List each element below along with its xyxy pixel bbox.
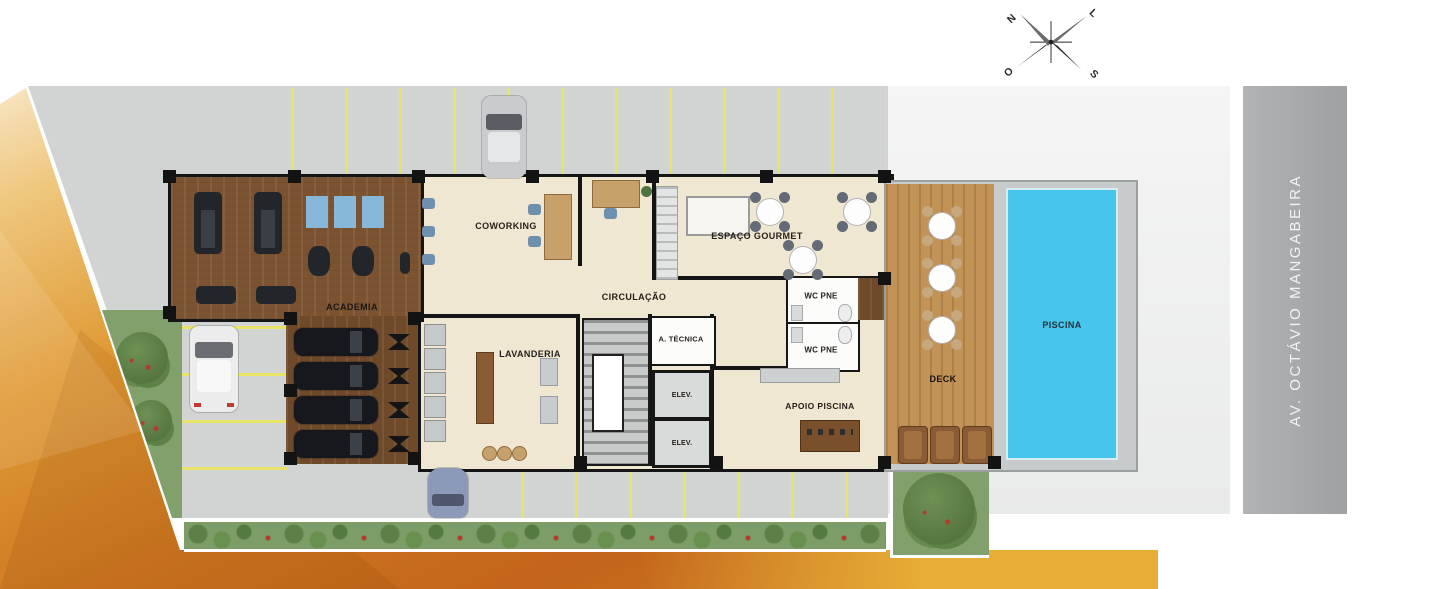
wc-fixture: [838, 326, 852, 344]
floor-plan-canvas: AV. OCTÁVIO MANGABEIRA ELEV.: [0, 0, 1442, 589]
weight-bench: [256, 286, 296, 304]
compass-south: S: [1087, 68, 1100, 81]
hedge-strip: [184, 519, 886, 552]
tree: [903, 473, 975, 545]
column: [412, 170, 425, 183]
compass-east: L: [1087, 7, 1100, 20]
wall: [418, 314, 578, 318]
car-roof: [197, 360, 231, 392]
office-chair: [422, 198, 435, 209]
column: [526, 170, 539, 183]
column: [760, 170, 773, 183]
elevator-2: ELEV.: [652, 418, 712, 468]
apoio-sideboard: [800, 420, 860, 452]
compass-rose: N L O S: [995, 4, 1107, 84]
washer: [424, 324, 446, 346]
laundry-cart: [540, 358, 558, 386]
label-piscina: PISCINA: [1042, 320, 1081, 330]
office-chair: [422, 226, 435, 237]
exercise-bike: [352, 246, 374, 276]
elevator-label: ELEV.: [672, 440, 693, 447]
stairs: [582, 318, 650, 466]
parked-car-black: [294, 430, 378, 458]
compass-west: O: [1003, 66, 1017, 80]
gourmet-round-table: [748, 190, 792, 234]
car-windshield: [432, 494, 464, 506]
treadmill-belt: [261, 210, 275, 248]
parked-car-black: [294, 328, 378, 356]
deck-round-table: [920, 204, 964, 248]
wc-fixture: [838, 304, 852, 322]
tree: [116, 332, 168, 384]
elevator-1: ELEV.: [652, 370, 712, 420]
washer: [424, 420, 446, 442]
car-windshield: [350, 399, 362, 421]
parking-lines-top: [240, 88, 886, 178]
parked-car-silver: [482, 96, 526, 178]
laundry-shelf: [476, 352, 494, 424]
label-apoio-piscina: APOIO PISCINA: [785, 401, 854, 411]
gourmet-counter: [656, 186, 678, 280]
treadmill: [194, 192, 222, 254]
treadmill-belt: [201, 210, 215, 248]
column: [710, 456, 723, 469]
room-wc-pne-1: [786, 276, 860, 326]
apoio-counter: [760, 368, 840, 383]
car-roof: [488, 132, 520, 162]
garden-square: [890, 466, 989, 558]
wc-fixture: [791, 327, 803, 343]
exercise-bike: [308, 246, 330, 276]
column: [878, 456, 891, 469]
label-area-tecnica: A. TÉCNICA: [659, 335, 704, 344]
column: [408, 452, 421, 465]
street-name: AV. OCTÁVIO MANGABEIRA: [1287, 174, 1304, 427]
coworking-desk: [544, 194, 572, 260]
gourmet-round-table: [835, 190, 879, 234]
plant: [641, 186, 652, 197]
wall: [578, 174, 582, 266]
column: [408, 312, 421, 325]
label-wc-pne-1: WC PNE: [804, 292, 837, 301]
column: [163, 170, 176, 183]
car-windshield: [350, 433, 362, 455]
parked-car-blue: [428, 468, 468, 518]
bottles: [807, 429, 853, 435]
car-taillight: [194, 403, 201, 407]
office-chair: [528, 204, 541, 215]
laundry-basket: [512, 446, 527, 461]
parked-car-black: [294, 362, 378, 390]
exercise-mat: [362, 196, 384, 228]
office-chair: [604, 208, 617, 219]
gourmet-long-table: [686, 196, 750, 236]
exercise-mat: [334, 196, 356, 228]
label-academia: ACADEMIA: [326, 302, 378, 312]
laundry-basket: [497, 446, 512, 461]
column: [878, 170, 891, 183]
car-windshield: [350, 331, 362, 353]
stair-landing: [592, 354, 624, 432]
gourmet-round-table: [781, 238, 825, 282]
weight-bench: [196, 286, 236, 304]
label-lavanderia: LAVANDERIA: [499, 349, 561, 359]
column: [284, 312, 297, 325]
column: [646, 170, 659, 183]
label-wc-pne-2: WC PNE: [804, 346, 837, 355]
column: [288, 170, 301, 183]
column: [878, 272, 891, 285]
deck-round-table: [920, 308, 964, 352]
label-circulacao: CIRCULAÇÃO: [602, 292, 667, 302]
parked-car-black: [294, 396, 378, 424]
car-windshield: [350, 365, 362, 387]
compass-north: N: [1006, 13, 1019, 26]
exercise-mat: [306, 196, 328, 228]
parked-car-white: [190, 326, 238, 412]
column: [988, 456, 1001, 469]
avenue-band: AV. OCTÁVIO MANGABEIRA: [1243, 86, 1347, 514]
column: [574, 456, 587, 469]
pool-lounger: [930, 426, 960, 464]
washer: [424, 348, 446, 370]
office-chair: [528, 236, 541, 247]
pool-lounger: [898, 426, 928, 464]
deck-round-table: [920, 256, 964, 300]
laundry-basket: [482, 446, 497, 461]
washer: [424, 396, 446, 418]
car-windshield: [195, 342, 233, 358]
wc-fixture: [791, 305, 803, 321]
coworking-desk: [592, 180, 640, 208]
column: [284, 452, 297, 465]
label-espaco-gourmet: ESPAÇO GOURMET: [711, 231, 802, 241]
car-taillight: [227, 403, 234, 407]
label-deck: DECK: [929, 374, 956, 384]
office-chair: [422, 254, 435, 265]
label-coworking: COWORKING: [475, 221, 537, 231]
wall: [576, 314, 580, 466]
treadmill: [254, 192, 282, 254]
column: [163, 306, 176, 319]
column: [284, 384, 297, 397]
elevator-label: ELEV.: [672, 392, 693, 399]
weight-rack: [400, 252, 410, 274]
laundry-cart: [540, 396, 558, 424]
washer: [424, 372, 446, 394]
car-windshield: [486, 114, 522, 130]
